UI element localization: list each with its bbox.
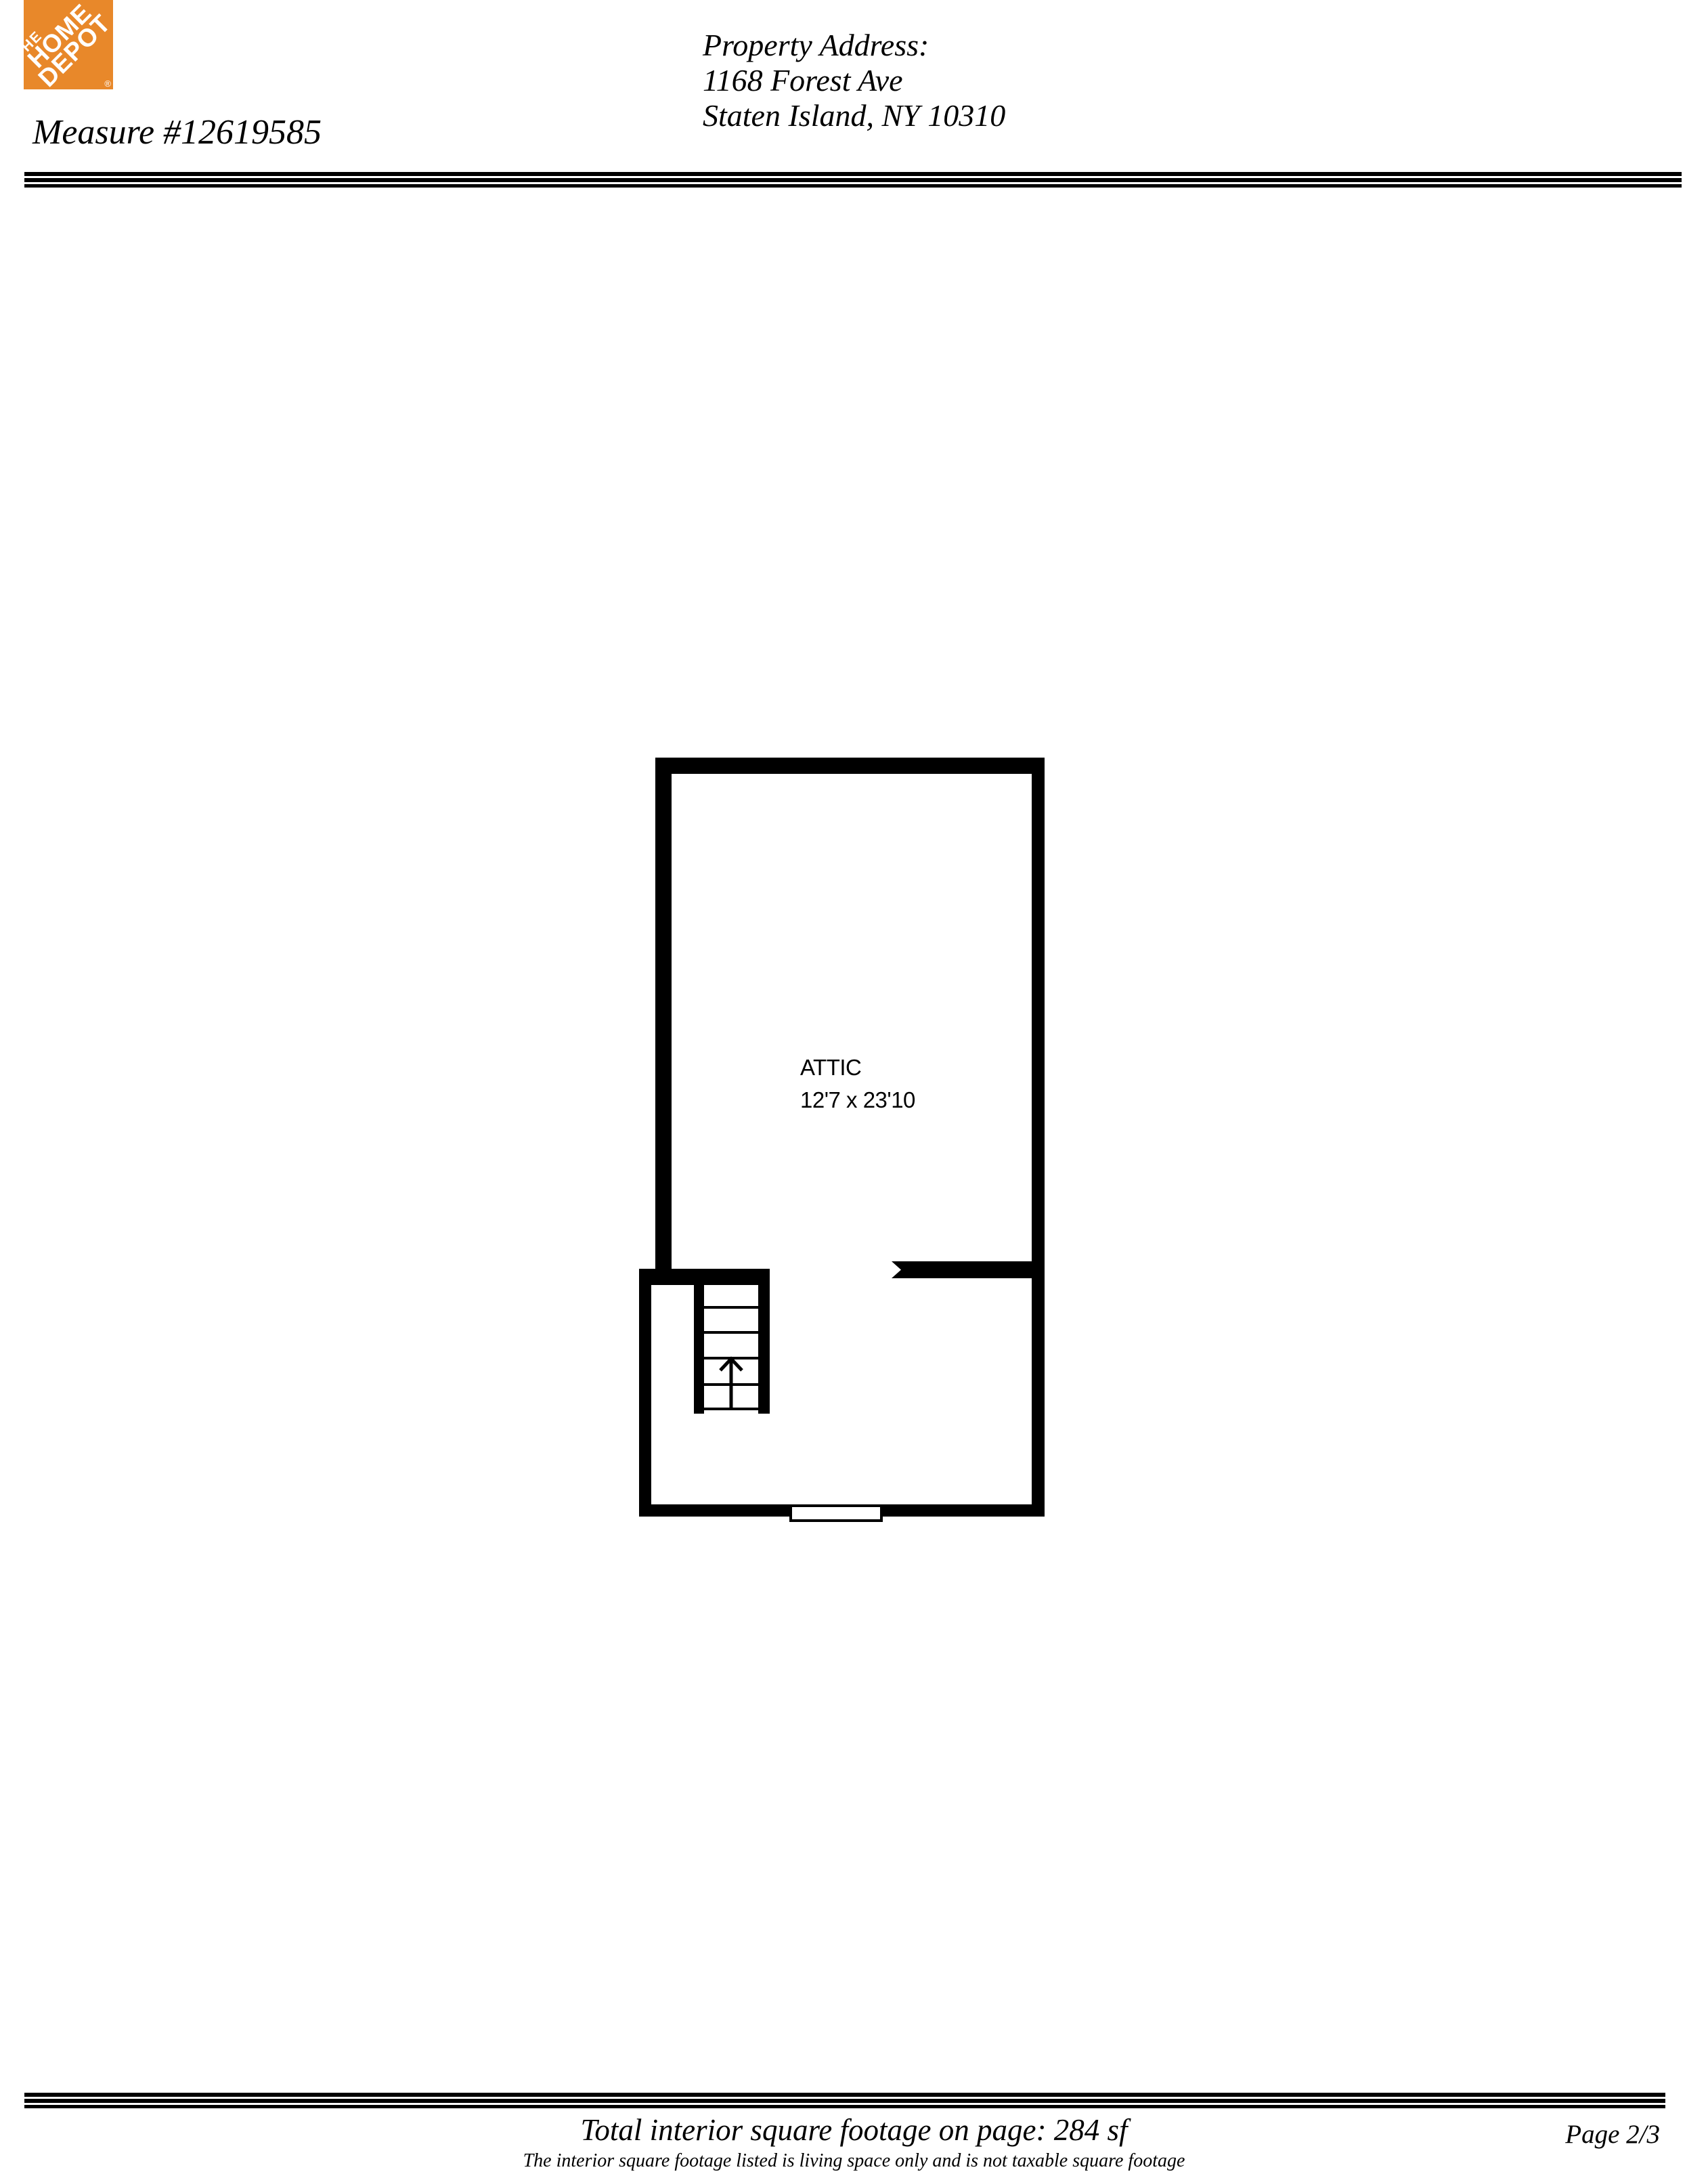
disclaimer-text: The interior square footage listed is li… bbox=[0, 2150, 1708, 2172]
right-wall bbox=[1032, 758, 1045, 1517]
left-wall-upper bbox=[655, 774, 672, 1285]
page-indicator: Page 2/3 bbox=[1565, 2119, 1660, 2150]
room-dimensions: 12'7 x 23'10 bbox=[800, 1084, 915, 1116]
document-page: THE HOME DEPOT ® Measure #12619585 Prope… bbox=[0, 0, 1708, 2176]
entry-wall-right bbox=[892, 1261, 1032, 1278]
room-name: ATTIC bbox=[800, 1051, 915, 1084]
stair-base-line bbox=[704, 1408, 758, 1410]
total-square-footage: Total interior square footage on page: 2… bbox=[0, 2112, 1708, 2148]
stair-tread-4 bbox=[704, 1383, 758, 1386]
left-wall-lower bbox=[639, 1285, 651, 1517]
stair-tread-1 bbox=[704, 1306, 758, 1309]
stair-tread-3 bbox=[704, 1357, 758, 1359]
stair-top-wall bbox=[639, 1269, 770, 1285]
stair-wall-right bbox=[758, 1285, 770, 1414]
top-wall bbox=[655, 758, 1045, 774]
floor-plan: ATTIC 12'7 x 23'10 bbox=[0, 0, 1708, 2176]
entry-door bbox=[789, 1504, 883, 1522]
room-label-block: ATTIC 12'7 x 23'10 bbox=[800, 1051, 915, 1116]
stair-wall-left bbox=[694, 1285, 704, 1414]
footer-divider bbox=[24, 2093, 1665, 2108]
stair-tread-2 bbox=[704, 1331, 758, 1334]
